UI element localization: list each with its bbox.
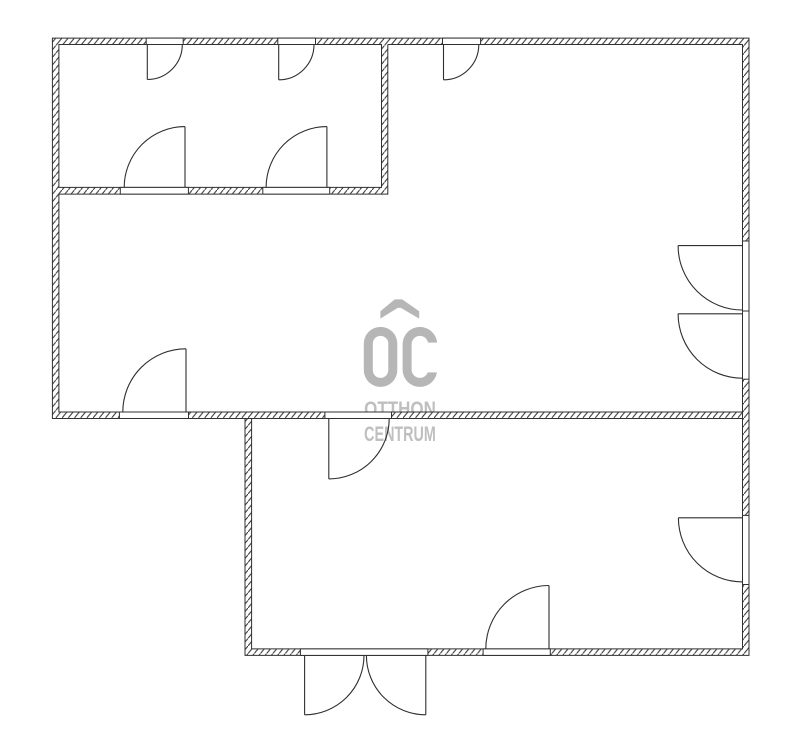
svg-text:CENTRUM: CENTRUM — [364, 422, 436, 446]
